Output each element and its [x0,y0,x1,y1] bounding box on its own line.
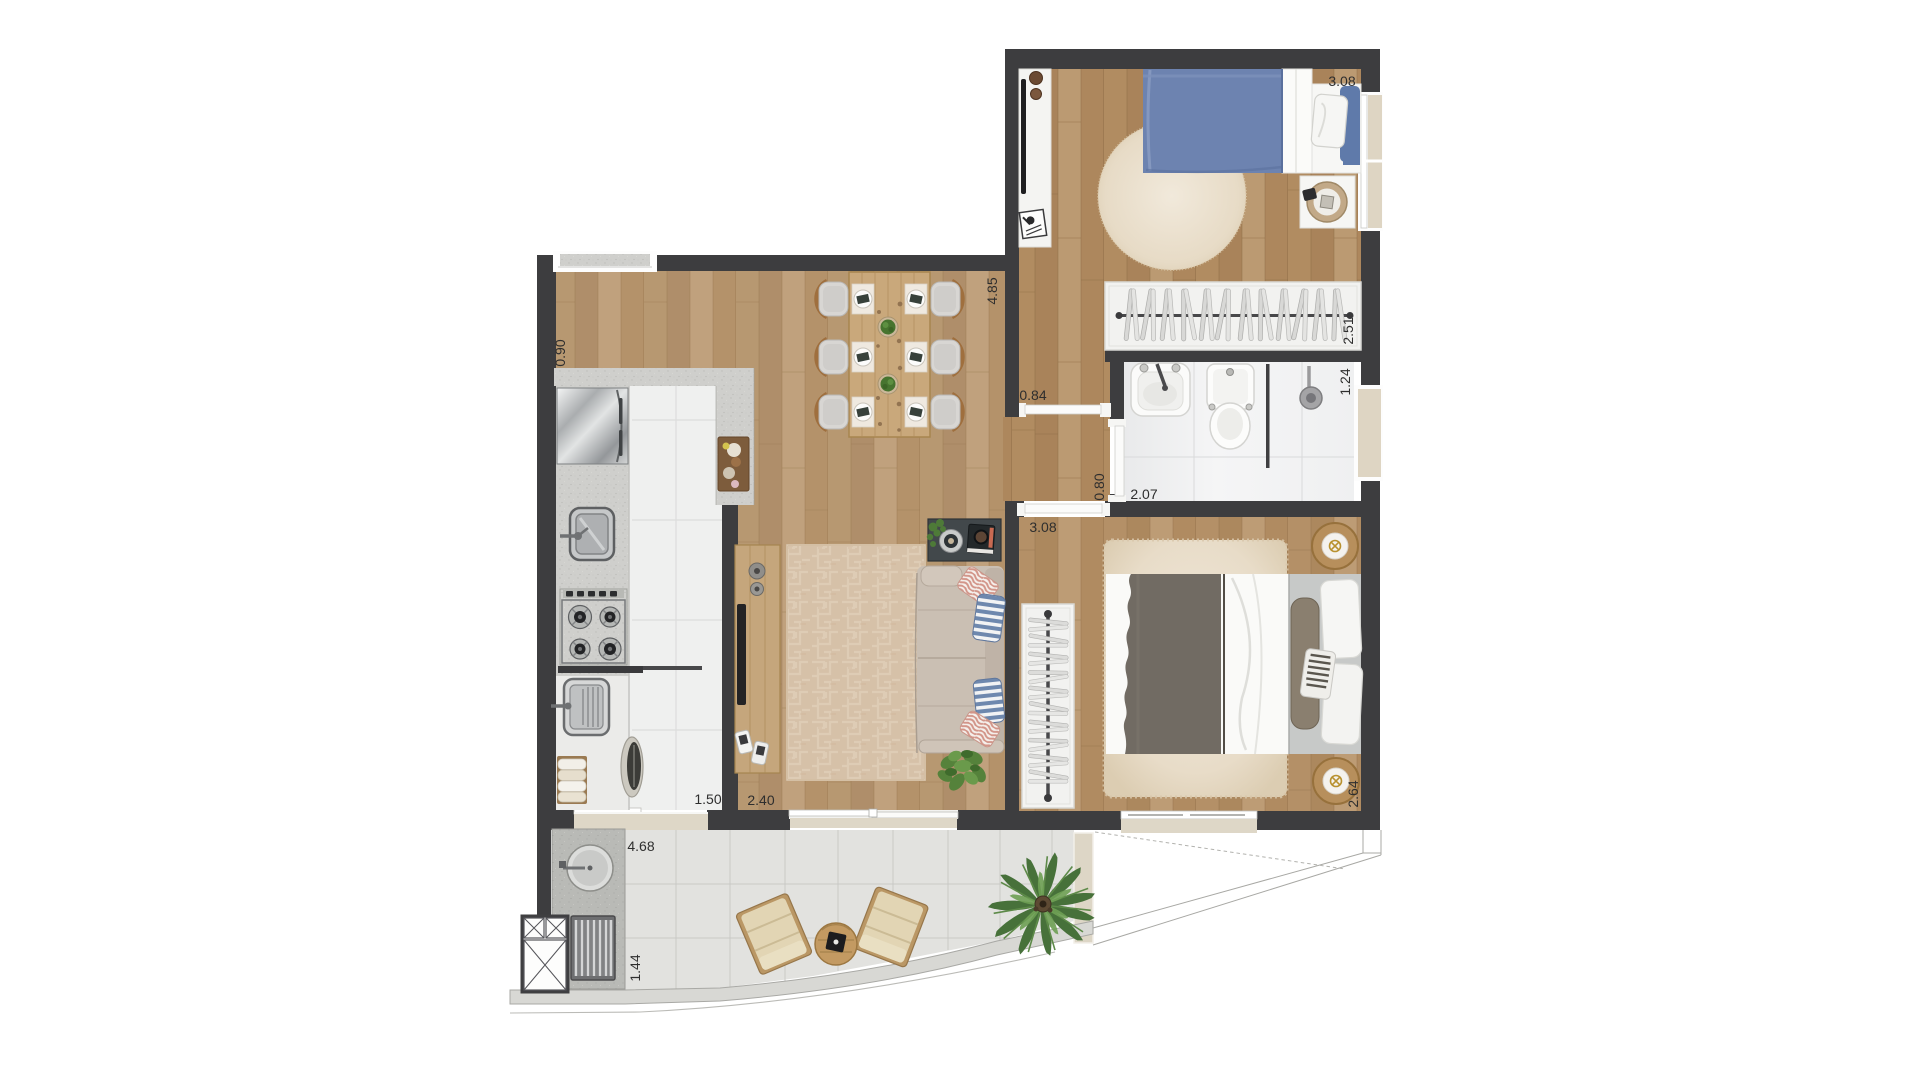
svg-text:0.90: 0.90 [552,339,568,366]
svg-text:1.50: 1.50 [694,791,721,807]
svg-text:4.85: 4.85 [984,277,1000,304]
svg-text:1.44: 1.44 [627,954,643,981]
svg-text:3.08: 3.08 [1029,519,1056,535]
svg-text:2.51: 2.51 [1340,317,1356,344]
svg-text:3.08: 3.08 [1328,73,1355,89]
svg-text:2.07: 2.07 [1130,486,1157,502]
svg-text:4.68: 4.68 [627,838,654,854]
svg-text:2.64: 2.64 [1345,780,1361,807]
svg-text:0.80: 0.80 [1091,473,1107,500]
svg-text:0.84: 0.84 [1019,387,1046,403]
svg-text:1.24: 1.24 [1337,368,1353,395]
svg-text:2.40: 2.40 [747,792,774,808]
